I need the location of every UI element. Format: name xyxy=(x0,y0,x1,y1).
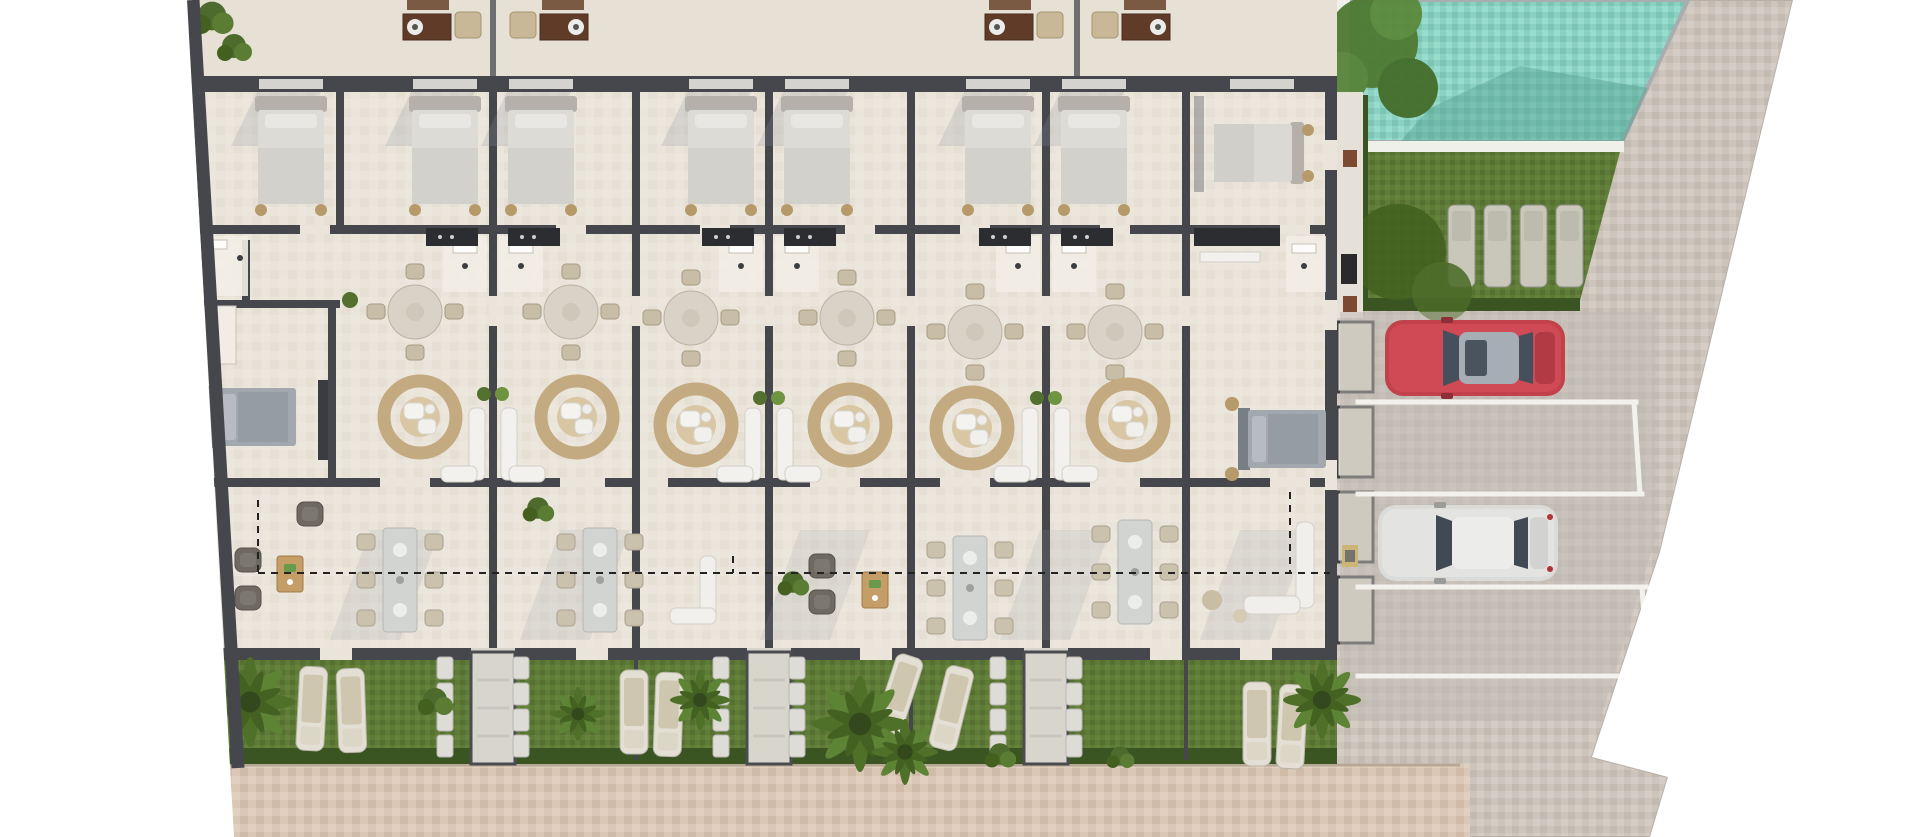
sidewalk xyxy=(200,764,1470,837)
plant-pot xyxy=(1343,150,1357,167)
garden-path xyxy=(471,652,515,764)
pouf xyxy=(1233,609,1247,623)
interior-wall xyxy=(196,478,1325,487)
garden-path xyxy=(1024,652,1068,764)
bench xyxy=(1341,254,1357,284)
sun-lounger xyxy=(1484,205,1511,287)
pouf xyxy=(1202,590,1222,610)
site-plan-svg xyxy=(0,0,1920,837)
outdoor-armchair xyxy=(235,586,261,610)
outdoor-armchair xyxy=(297,502,323,526)
parking-area xyxy=(1340,312,1655,720)
site-plan-rendering: Top-down 3D rendering of a row of mirror… xyxy=(0,0,1920,837)
side-walkway xyxy=(1337,92,1363,318)
tv-wall xyxy=(318,380,328,460)
outdoor-armchair xyxy=(809,554,835,578)
plant-pot xyxy=(1343,296,1357,312)
pool-deck xyxy=(1348,141,1624,152)
interior-wall xyxy=(196,225,1325,234)
red-car xyxy=(1385,317,1565,399)
outdoor-armchair xyxy=(809,590,835,614)
exterior-wall xyxy=(196,76,1337,92)
coffee-table xyxy=(862,572,888,608)
sun-lounger xyxy=(1520,205,1547,287)
white-car xyxy=(1378,502,1558,584)
garden-path xyxy=(747,652,791,764)
sun-lounger xyxy=(1556,205,1583,287)
